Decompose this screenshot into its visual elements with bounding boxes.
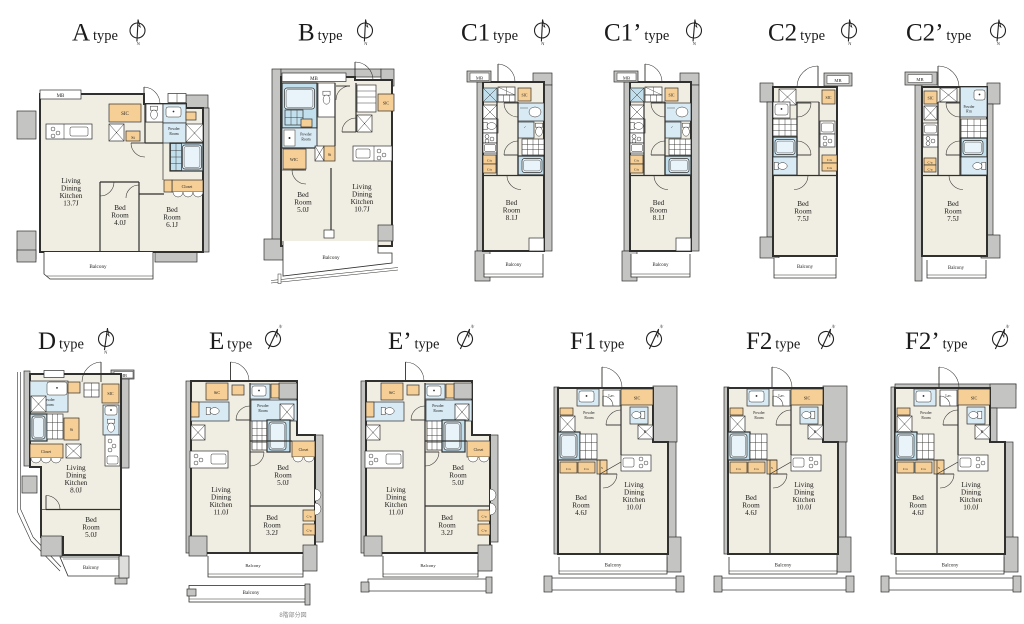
svg-text:3.2J: 3.2J	[266, 529, 278, 537]
svg-text:10.0J: 10.0J	[626, 504, 642, 512]
svg-text:C/u: C/u	[487, 159, 492, 163]
svg-text:C/u: C/u	[481, 515, 486, 519]
svg-text:C/u: C/u	[634, 159, 639, 163]
svg-text:C/o: C/o	[584, 467, 589, 471]
svg-text:MB: MB	[623, 75, 630, 80]
svg-text:C/o: C/o	[921, 467, 926, 471]
svg-text:Closet: Closet	[41, 449, 52, 454]
svg-text:Room: Room	[169, 132, 178, 136]
svg-text:11.0J: 11.0J	[388, 509, 403, 517]
svg-text:Balcony: Balcony	[948, 266, 965, 271]
svg-text:Powder: Powder	[300, 133, 312, 137]
svg-text:SIC: SIC	[826, 96, 832, 100]
svg-text:Lav.: Lav.	[778, 394, 784, 398]
svg-text:8.1J: 8.1J	[653, 214, 665, 222]
svg-text:Balcony: Balcony	[506, 263, 523, 268]
svg-text:C/u: C/u	[481, 529, 486, 533]
svg-text:SIC: SIC	[928, 97, 934, 101]
svg-text:C1’ type: C1’ type	[604, 20, 669, 47]
svg-text:7.5J: 7.5J	[947, 215, 959, 223]
svg-text:N: N	[278, 324, 284, 330]
svg-text:✓: ✓	[671, 125, 674, 129]
svg-text:F2 type: F2 type	[746, 328, 800, 355]
svg-text:10.0J: 10.0J	[963, 504, 979, 512]
svg-text:WIC: WIC	[290, 157, 298, 162]
svg-text:S: S	[938, 466, 940, 470]
svg-text:MB: MB	[476, 75, 483, 80]
svg-text:10.0J: 10.0J	[796, 504, 812, 512]
svg-text:F2’ type: F2’ type	[905, 328, 968, 355]
svg-text:13.7J: 13.7J	[63, 200, 79, 208]
svg-text:S: S	[771, 466, 773, 470]
svg-text:E type: E type	[209, 328, 252, 355]
svg-text:10.7J: 10.7J	[354, 206, 370, 214]
svg-text:Room: Room	[433, 409, 442, 413]
svg-text:N: N	[137, 41, 141, 46]
svg-text:C1 type: C1 type	[461, 20, 518, 47]
svg-text:C2’ type: C2’ type	[906, 20, 971, 47]
svg-text:N: N	[831, 324, 837, 330]
svg-text:Powder: Powder	[168, 127, 180, 131]
svg-text:Balcony: Balcony	[797, 265, 814, 270]
svg-text:C/u: C/u	[634, 168, 639, 172]
svg-text:SIC: SIC	[669, 94, 675, 98]
svg-text:5.0J: 5.0J	[297, 206, 309, 214]
svg-text:SIC: SIC	[107, 391, 114, 396]
svg-text:MB: MB	[310, 77, 318, 82]
svg-text:Room: Room	[301, 138, 310, 142]
svg-text:3.2J: 3.2J	[441, 529, 453, 537]
svg-text:C/o: C/o	[736, 467, 741, 471]
svg-text:N: N	[997, 41, 1001, 46]
svg-text:N: N	[1005, 324, 1011, 330]
svg-text:5.0J: 5.0J	[85, 531, 97, 539]
svg-text:4.6J: 4.6J	[912, 509, 924, 517]
svg-text:C/o: C/o	[754, 467, 759, 471]
svg-text:E’ type: E’ type	[388, 328, 439, 355]
svg-text:8階部分図: 8階部分図	[279, 611, 306, 619]
svg-text:Balcony: Balcony	[83, 566, 100, 571]
svg-text:Balcony: Balcony	[653, 263, 670, 268]
svg-text:Powder: Powder	[583, 411, 595, 415]
svg-text:SIC: SIC	[804, 396, 811, 401]
svg-text:Powder: Powder	[920, 411, 932, 415]
svg-text:11.0J: 11.0J	[213, 509, 228, 517]
svg-text:Room: Room	[584, 416, 593, 420]
svg-text:SIC: SIC	[634, 396, 641, 401]
svg-text:C/o: C/o	[566, 467, 571, 471]
svg-text:Balcony: Balcony	[420, 563, 436, 568]
svg-text:R'm: R'm	[966, 110, 972, 114]
svg-text:Lav.: Lav.	[608, 394, 614, 398]
svg-text:C/u: C/u	[827, 166, 832, 170]
svg-text:SIC: SIC	[971, 396, 978, 401]
svg-text:MB: MB	[57, 94, 65, 99]
svg-text:Lav.: Lav.	[945, 394, 951, 398]
svg-text:C/u: C/u	[928, 161, 933, 165]
svg-text:SIC: SIC	[383, 101, 390, 106]
svg-text:Balcony: Balcony	[775, 564, 792, 569]
svg-text:C/u: C/u	[827, 158, 832, 162]
svg-text:Closet: Closet	[182, 184, 194, 189]
svg-text:5.0J: 5.0J	[277, 479, 289, 487]
svg-text:C2 type: C2 type	[768, 20, 825, 47]
svg-text:C/u: C/u	[928, 168, 933, 172]
svg-text:Closet: Closet	[474, 448, 485, 452]
svg-text:4.6J: 4.6J	[575, 509, 587, 517]
svg-text:S: S	[601, 466, 603, 470]
svg-text:SIC: SIC	[522, 94, 528, 98]
svg-text:Balcony: Balcony	[322, 255, 340, 261]
svg-text:N: N	[104, 349, 109, 355]
svg-text:Room: Room	[921, 416, 930, 420]
svg-text:Room: Room	[754, 416, 763, 420]
svg-text:D type: D type	[38, 328, 84, 355]
svg-text:F1 type: F1 type	[570, 328, 624, 355]
svg-text:Powder: Powder	[257, 404, 269, 408]
svg-text:MB: MB	[916, 77, 923, 82]
svg-text:N: N	[659, 324, 665, 330]
svg-text:SiC: SiC	[389, 390, 395, 395]
svg-text:MB: MB	[834, 78, 841, 83]
svg-text:Balcony: Balcony	[245, 563, 261, 568]
svg-text:Room: Room	[258, 409, 267, 413]
svg-text:Closet: Closet	[299, 448, 310, 452]
svg-text:C/o: C/o	[903, 467, 908, 471]
svg-text:4.0J: 4.0J	[114, 219, 126, 227]
svg-text:B type: B type	[298, 20, 343, 47]
svg-text:Balcony: Balcony	[243, 591, 260, 596]
svg-text:8.1J: 8.1J	[506, 214, 518, 222]
svg-text:N: N	[470, 324, 476, 330]
svg-text:N: N	[364, 41, 368, 46]
svg-text:7.5J: 7.5J	[797, 215, 809, 223]
svg-text:C/u: C/u	[487, 168, 492, 172]
svg-text:8.0J: 8.0J	[70, 487, 82, 495]
svg-text:5.0J: 5.0J	[452, 479, 464, 487]
svg-text:C/u: C/u	[306, 529, 311, 533]
svg-text:SIC: SIC	[121, 112, 129, 117]
svg-text:A type: A type	[72, 20, 118, 47]
svg-text:✓: ✓	[524, 125, 527, 129]
svg-text:N: N	[848, 41, 852, 46]
svg-text:Powder: Powder	[753, 411, 765, 415]
svg-text:Powder: Powder	[432, 404, 444, 408]
svg-text:N: N	[693, 41, 697, 46]
svg-text:Balcony: Balcony	[89, 264, 107, 270]
svg-text:SiC: SiC	[214, 390, 220, 395]
svg-text:Powder: Powder	[964, 105, 976, 109]
svg-text:6.1J: 6.1J	[166, 221, 178, 229]
svg-text:N: N	[541, 41, 545, 46]
svg-text:C/u: C/u	[306, 515, 311, 519]
svg-text:4.6J: 4.6J	[745, 509, 757, 517]
svg-text:Balcony: Balcony	[942, 564, 959, 569]
svg-text:Balcony: Balcony	[605, 564, 622, 569]
